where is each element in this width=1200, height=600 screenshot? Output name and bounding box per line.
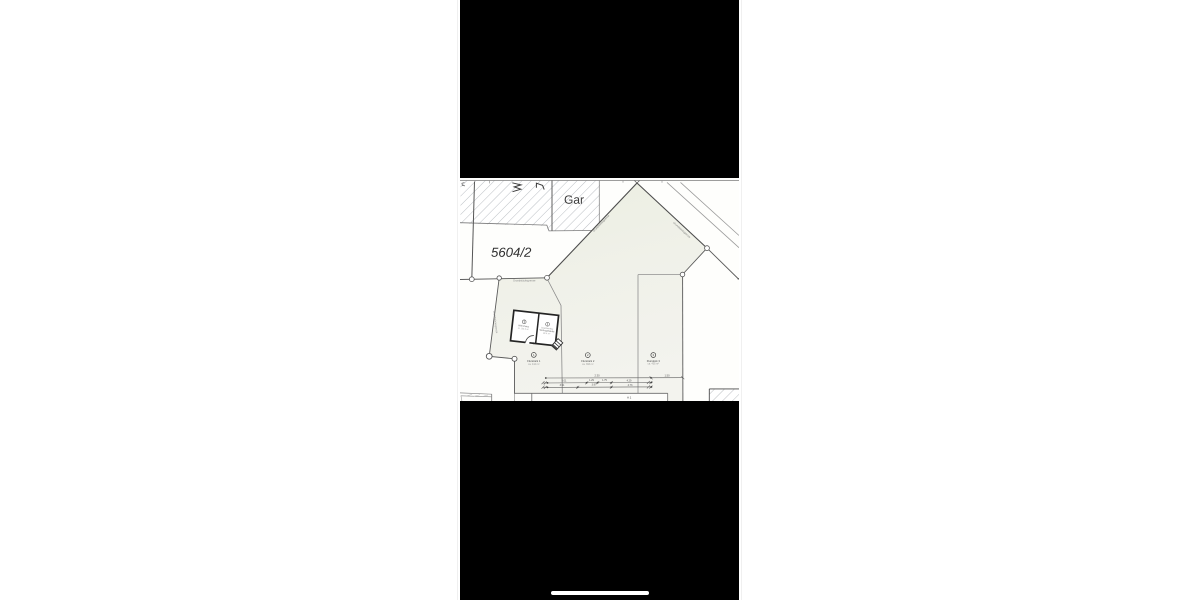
svg-text:4.29: 4.29 — [627, 379, 632, 382]
svg-text:ca. 393 m²: ca. 393 m² — [582, 362, 593, 365]
svg-text:4.73: 4.73 — [628, 383, 633, 386]
svg-text:1.29: 1.29 — [589, 379, 594, 382]
svg-text:ca. 405 m²: ca. 405 m² — [648, 362, 659, 365]
svg-text:1.75: 1.75 — [602, 379, 607, 382]
svg-text:Grundstücksgrenze: Grundstücksgrenze — [513, 278, 536, 282]
svg-text:3.97: 3.97 — [592, 383, 597, 386]
svg-text:A 1: A 1 — [627, 395, 632, 399]
svg-text:5.01: 5.01 — [562, 379, 567, 382]
svg-text:ca. 412 m²: ca. 412 m² — [528, 362, 539, 365]
svg-text:2.30: 2.30 — [594, 373, 600, 377]
svg-text:1.50: 1.50 — [664, 373, 670, 377]
svg-text:3.51: 3.51 — [560, 383, 565, 386]
